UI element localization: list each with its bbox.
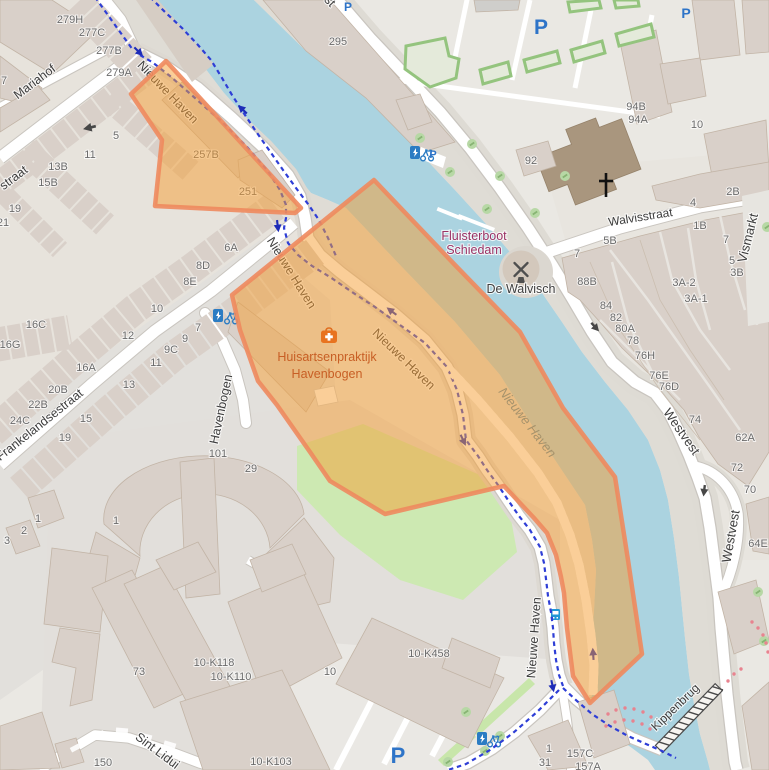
svg-text:94A: 94A (628, 114, 648, 126)
svg-text:P: P (681, 5, 690, 21)
svg-text:2B: 2B (726, 186, 739, 198)
svg-text:P: P (534, 16, 548, 39)
svg-text:P: P (391, 743, 406, 768)
svg-text:10: 10 (151, 303, 163, 315)
svg-text:78: 78 (627, 335, 639, 347)
svg-text:150: 150 (94, 757, 112, 769)
svg-text:5: 5 (113, 130, 119, 142)
svg-text:3A-1: 3A-1 (684, 293, 707, 305)
svg-text:13B: 13B (48, 161, 68, 173)
svg-text:8D: 8D (196, 260, 210, 272)
svg-text:4: 4 (690, 197, 696, 209)
svg-text:3B: 3B (730, 267, 743, 279)
svg-text:76D: 76D (659, 381, 679, 393)
svg-text:7: 7 (574, 248, 580, 260)
svg-text:92: 92 (525, 155, 537, 167)
svg-text:16C: 16C (26, 319, 46, 331)
svg-text:3A-2: 3A-2 (672, 277, 695, 289)
svg-text:8E: 8E (183, 276, 196, 288)
svg-text:7: 7 (723, 234, 729, 246)
svg-text:Havenbogen: Havenbogen (292, 367, 363, 381)
svg-text:24C: 24C (10, 415, 30, 427)
svg-text:P: P (344, 0, 352, 14)
svg-text:1B: 1B (693, 220, 706, 232)
svg-text:10: 10 (324, 666, 336, 678)
svg-text:3: 3 (4, 535, 10, 547)
svg-text:74: 74 (689, 414, 701, 426)
svg-text:76H: 76H (635, 350, 655, 362)
svg-text:5: 5 (729, 255, 735, 267)
svg-text:101: 101 (209, 448, 227, 460)
svg-text:157C: 157C (567, 748, 593, 760)
svg-text:Huisartsenpraktijk: Huisartsenpraktijk (277, 350, 377, 364)
svg-text:9C: 9C (164, 344, 178, 356)
svg-text:10-K103: 10-K103 (250, 756, 292, 768)
svg-text:19: 19 (9, 203, 21, 215)
svg-text:Schiedam: Schiedam (446, 243, 502, 257)
svg-text:64E: 64E (748, 538, 768, 550)
svg-text:277B: 277B (96, 45, 122, 57)
svg-text:279A: 279A (106, 67, 132, 79)
svg-text:P: P (429, 149, 436, 161)
svg-text:62A: 62A (735, 432, 755, 444)
svg-text:1: 1 (113, 515, 119, 527)
svg-text:20B: 20B (48, 384, 68, 396)
svg-text:29: 29 (245, 463, 257, 475)
svg-text:10-K118: 10-K118 (194, 657, 235, 669)
svg-text:5B: 5B (603, 235, 616, 247)
svg-text:1: 1 (35, 513, 41, 525)
svg-text:94B: 94B (626, 101, 646, 113)
svg-text:10-K458: 10-K458 (408, 648, 450, 660)
svg-text:22B: 22B (28, 399, 48, 411)
svg-text:10-K110: 10-K110 (211, 671, 252, 683)
svg-text:15B: 15B (38, 177, 58, 189)
svg-text:88B: 88B (577, 276, 597, 288)
svg-text:11: 11 (150, 357, 161, 369)
svg-text:157A: 157A (575, 761, 601, 770)
svg-text:16A: 16A (76, 362, 96, 374)
svg-text:72: 72 (731, 462, 743, 474)
svg-text:10: 10 (691, 119, 703, 131)
svg-text:84: 84 (600, 300, 612, 312)
svg-text:295: 295 (329, 36, 347, 48)
svg-text:31: 31 (539, 757, 551, 769)
svg-text:70: 70 (744, 484, 756, 496)
svg-text:277C: 277C (79, 27, 105, 39)
svg-text:279H: 279H (57, 14, 83, 26)
svg-text:80A: 80A (615, 323, 635, 335)
svg-text:De Walvisch: De Walvisch (487, 282, 556, 296)
svg-text:13: 13 (123, 379, 135, 391)
svg-text:21: 21 (0, 217, 9, 229)
svg-text:15: 15 (80, 413, 92, 425)
svg-text:9: 9 (182, 333, 188, 345)
svg-text:19: 19 (59, 432, 71, 444)
svg-text:Fluisterboot: Fluisterboot (441, 229, 507, 243)
svg-text:7: 7 (1, 75, 7, 87)
svg-text:7: 7 (195, 322, 201, 334)
svg-text:16G: 16G (0, 339, 20, 351)
svg-text:12: 12 (122, 330, 134, 342)
svg-text:1: 1 (546, 743, 552, 755)
svg-text:2: 2 (21, 525, 27, 537)
svg-text:6A: 6A (224, 242, 238, 254)
svg-text:11: 11 (84, 149, 95, 161)
svg-text:73: 73 (133, 666, 145, 678)
